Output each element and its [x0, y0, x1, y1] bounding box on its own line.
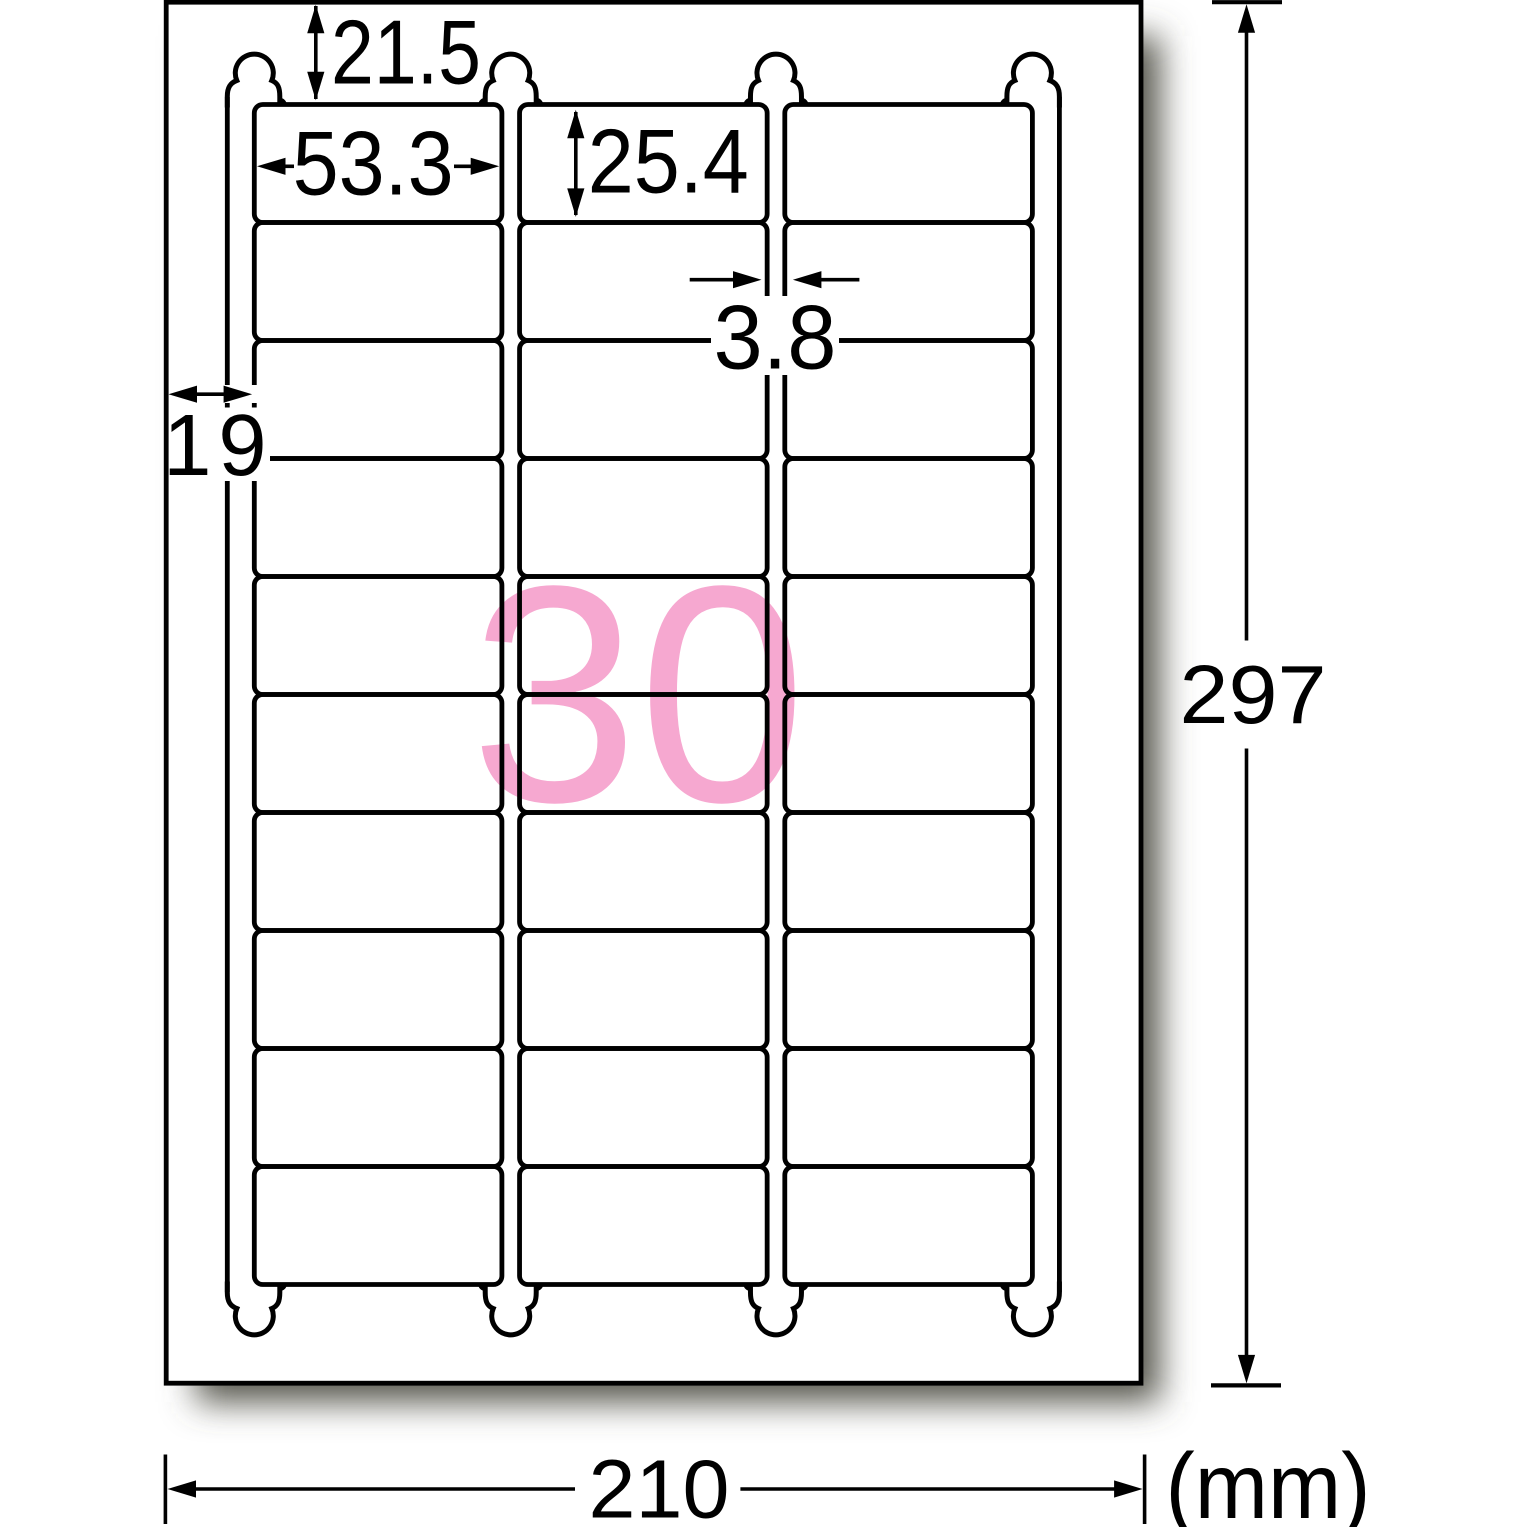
svg-text:25.4: 25.4 [588, 111, 749, 212]
svg-text:210: 210 [589, 1442, 730, 1527]
svg-text:297: 297 [1180, 648, 1327, 741]
svg-text:9: 9 [218, 397, 266, 494]
svg-text:(mm): (mm) [1166, 1434, 1371, 1527]
svg-text:21.5: 21.5 [331, 3, 481, 104]
svg-text:53.3: 53.3 [293, 113, 454, 214]
svg-text:3.8: 3.8 [714, 287, 837, 388]
svg-text:1: 1 [163, 397, 211, 494]
